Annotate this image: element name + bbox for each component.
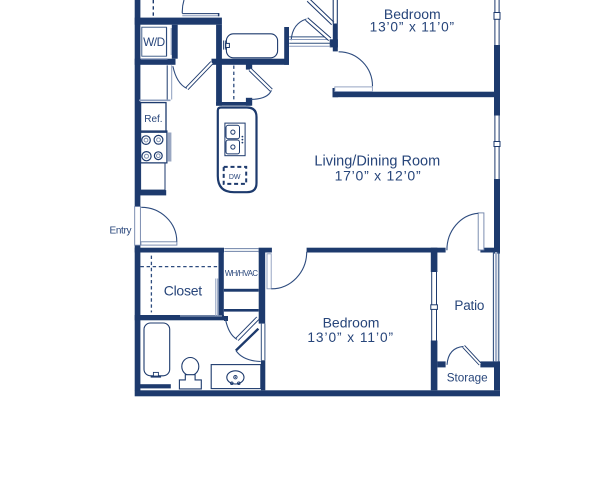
svg-text:Patio: Patio	[454, 298, 484, 313]
svg-text:W/D: W/D	[143, 35, 165, 49]
svg-text:Closet: Closet	[164, 283, 203, 299]
svg-text:Bedroom: Bedroom	[323, 315, 380, 331]
svg-text:Ref.: Ref.	[144, 114, 162, 125]
svg-text:DW: DW	[229, 174, 241, 181]
svg-text:Storage: Storage	[447, 372, 488, 385]
svg-text:Entry: Entry	[110, 226, 132, 237]
svg-text:13’0” x 11’0”: 13’0” x 11’0”	[307, 330, 394, 345]
svg-text:WH/HVAC: WH/HVAC	[225, 269, 259, 278]
svg-text:17’0” x 12’0”: 17’0” x 12’0”	[335, 168, 422, 184]
svg-text:13’0” x 11’0”: 13’0” x 11’0”	[370, 20, 455, 35]
